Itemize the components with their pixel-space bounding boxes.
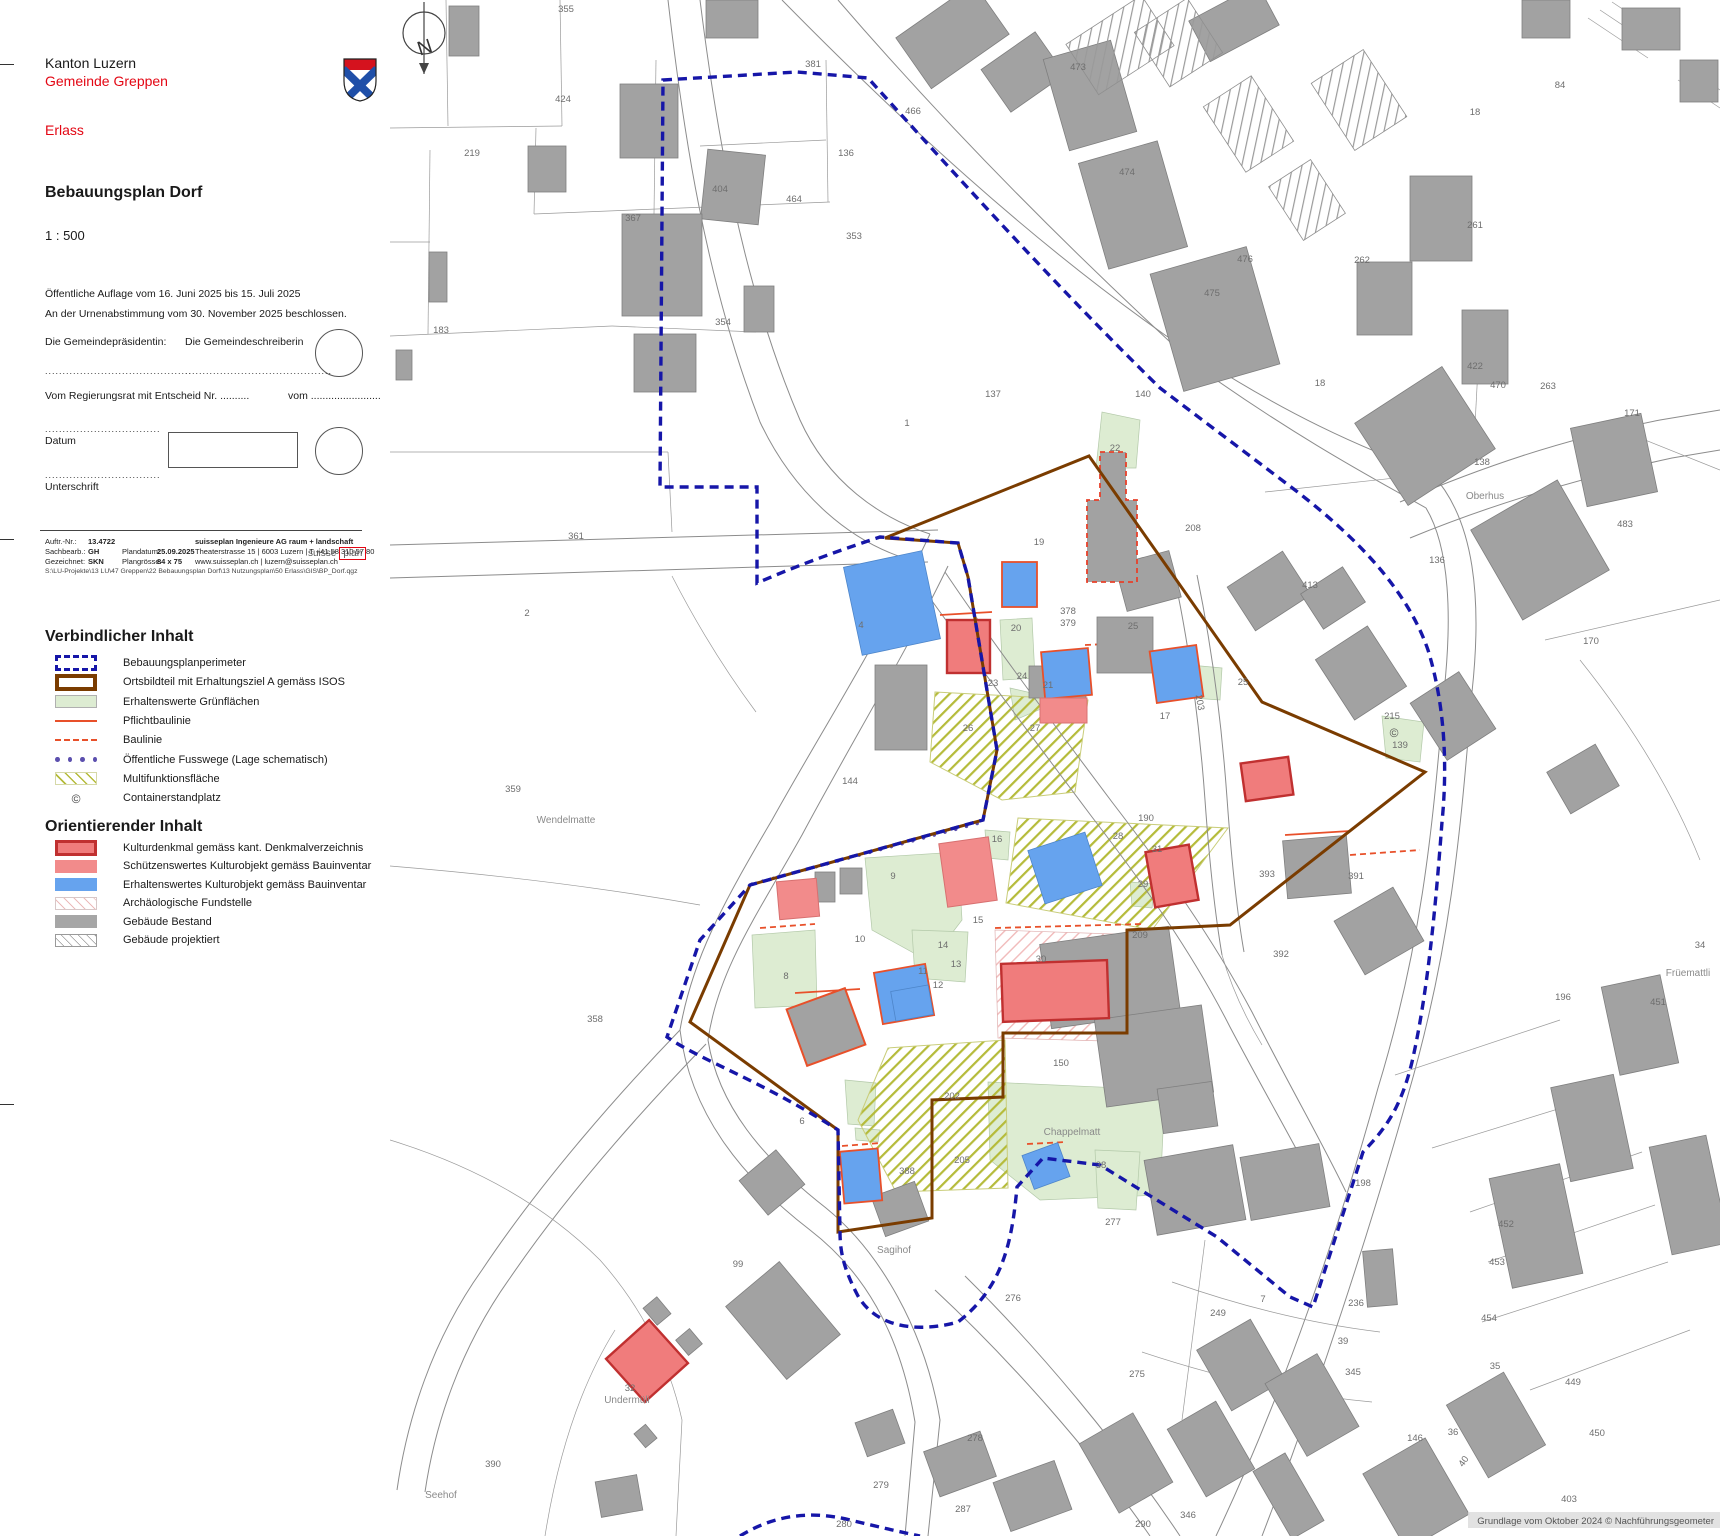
parcel-label: 378: [1060, 606, 1076, 617]
parcel-label: 14: [938, 940, 949, 951]
edge-tick: [0, 1104, 14, 1105]
parcel-label: 454: [1481, 1313, 1497, 1324]
legend-item-label: Ortsbildteil mit Erhaltungsziel A gemäss…: [123, 676, 345, 688]
legend-item-gruen: Erhaltenswerte Grünflächen: [55, 693, 259, 711]
stamp-circle-1: [315, 329, 363, 377]
building-erhaltenswert-baulinie: [1041, 648, 1092, 699]
firm-name: suisseplan Ingenieure AG raum + landscha…: [195, 537, 353, 546]
parcel-label: 208: [1185, 523, 1201, 534]
file-path: S:\LU-Projekte\13 LU\47 Greppen\22 Bebau…: [45, 568, 357, 575]
parcel-label: 171: [1624, 408, 1640, 419]
pflicht-swatch-icon: [55, 720, 97, 722]
parcel-label: 464: [786, 194, 802, 205]
building-bestand: [634, 334, 696, 392]
building-bestand: [1363, 1249, 1398, 1307]
plandatum-label: Plandatum:: [122, 547, 160, 556]
parcel-label: 346: [1180, 1510, 1196, 1521]
parcel-label: 24: [1017, 671, 1028, 682]
green-area: [752, 930, 817, 1008]
parcel-label: 1: [904, 418, 909, 429]
building-bestand: [840, 868, 862, 894]
parcel-label: 475: [1204, 288, 1220, 299]
parcel-label: 10: [855, 934, 866, 945]
building-bestand: [449, 6, 479, 56]
parcel-label: 236: [1348, 1298, 1364, 1309]
parcel-label: 359: [505, 784, 521, 795]
kultur-swatch-icon: [55, 840, 97, 856]
parcel-label: 99: [733, 1259, 744, 1270]
erhaltens-swatch-icon: [55, 878, 97, 891]
parcel-label: 84: [1555, 80, 1566, 91]
legend-item-label: Öffentliche Fusswege (Lage schematisch): [123, 754, 328, 766]
green-area: [1095, 1150, 1140, 1210]
fussweg-swatch-icon: [55, 753, 97, 766]
legend-item-container: ©Containerstandplatz: [55, 789, 221, 807]
building-bestand: [1462, 310, 1508, 384]
perimeter-swatch-icon: [55, 655, 97, 671]
suisseplan-logo: suisseplan: [308, 548, 366, 559]
parcel-label: 13: [951, 959, 962, 970]
legend-item-arch: Archäologische Fundstelle: [55, 894, 252, 912]
parcel-label: 36: [1448, 1427, 1459, 1438]
legend-item-label: Gebäude projektiert: [123, 934, 220, 946]
parcel-label: 473: [1070, 62, 1086, 73]
canton-label: Kanton Luzern: [45, 55, 136, 71]
legend-item-multi: Multifunktionsfläche: [55, 770, 220, 788]
gezeichnet-label: Gezeichnet:: [45, 557, 85, 566]
map-canvas: ©N35538142421936718340446435335436124661…: [390, 0, 1720, 1536]
unterschrift-label: Unterschrift: [45, 481, 99, 493]
parcel-label: 26: [963, 723, 974, 734]
parcel-label: 453: [1489, 1257, 1505, 1268]
legend-item-kultur: Kulturdenkmal gemäss kant. Denkmalverzei…: [55, 839, 363, 857]
parcel-label: 452: [1498, 1219, 1514, 1230]
building-bestand: [706, 0, 758, 38]
parcel-label: 367: [625, 213, 641, 224]
parcel-label: 392: [1273, 949, 1289, 960]
parcel-label: 30: [1036, 954, 1047, 965]
datum-label: Datum: [45, 435, 76, 447]
building-bestand: [701, 149, 766, 225]
parcel-label: 196: [1555, 992, 1571, 1003]
parcel-label: 355: [558, 4, 574, 15]
building-schuetzenswert: [1040, 698, 1087, 723]
building-bestand: [1283, 835, 1352, 898]
gezeichnet-value: SKN: [88, 557, 104, 566]
regierungsrat-line: Vom Regierungsrat mit Entscheid Nr. ....…: [45, 390, 249, 402]
parcel-label: 27: [1030, 723, 1041, 734]
parcel-label: 9: [890, 871, 895, 882]
baulinie-swatch-icon: [55, 739, 97, 741]
parcel-label: 358: [587, 1014, 603, 1025]
parcel-label: 404: [712, 184, 728, 195]
building-bestand: [1357, 262, 1412, 335]
building-erhaltenswert-baulinie: [840, 1148, 882, 1203]
parcel-label: 25: [1238, 677, 1249, 688]
parcel-label: 413: [1302, 580, 1318, 591]
vom-line: vom ........................: [288, 390, 381, 402]
parcel-label: 474: [1119, 167, 1135, 178]
building-bestand: [429, 252, 447, 302]
divider-rule: [40, 530, 362, 531]
parcel-label: 470: [1490, 380, 1506, 391]
parcel-label: 140: [1135, 389, 1151, 400]
signature-box: [168, 432, 298, 468]
title-panel: Kanton Luzern Gemeinde Greppen Erlass Be…: [0, 0, 390, 1536]
parcel-label: 449: [1565, 1377, 1581, 1388]
parcel-label: 277: [1105, 1217, 1121, 1228]
parcel-label: 353: [846, 231, 862, 242]
legend-item-erhaltens: Erhaltenswertes Kulturobjekt gemäss Baui…: [55, 876, 366, 894]
parcel-label: 39: [1338, 1336, 1349, 1347]
legend-title-orientierend: Orientierender Inhalt: [45, 818, 202, 836]
legend-item-isos: Ortsbildteil mit Erhaltungsziel A gemäss…: [55, 673, 345, 691]
projektiert-swatch-icon: [55, 934, 97, 947]
legend-item-perimeter: Bebauungsplanperimeter: [55, 654, 246, 672]
place-label: Seehof: [425, 1490, 457, 1501]
parcel-label: 381: [805, 59, 821, 70]
parcel-label: 20: [1011, 623, 1022, 634]
parcel-label: 424: [555, 94, 571, 105]
sig-left-label: Die Gemeindepräsidentin:: [45, 336, 166, 348]
parcel-label: 138: [1474, 457, 1490, 468]
place-label: Chappelmatt: [1044, 1127, 1101, 1138]
parcel-label: 278: [967, 1433, 983, 1444]
parcel-label: 137: [985, 389, 1001, 400]
stamp-circle-2: [315, 427, 363, 475]
plangroesse-value: 84 x 75: [157, 557, 182, 566]
parcel-label: 2: [524, 608, 529, 619]
parcel-label: 19: [1034, 537, 1045, 548]
parcel-label: 15: [973, 915, 984, 926]
isos-swatch-icon: [55, 674, 97, 691]
parcel-label: 361: [568, 531, 584, 542]
plandatum-value: 25.09.2025: [157, 547, 195, 556]
building-bestand: [1410, 176, 1472, 261]
building-bestand: [528, 146, 566, 192]
parcel-label: 262: [1354, 255, 1370, 266]
sig-left-line: ........................................…: [45, 366, 192, 376]
parcel-label: 393: [1259, 869, 1275, 880]
building-bestand: [620, 84, 678, 158]
sachbearb-label: Sachbearb.:: [45, 547, 85, 556]
parcel-label: 29: [1138, 879, 1149, 890]
parcel-label: 190: [1138, 813, 1154, 824]
parcel-label: 290: [1135, 1519, 1151, 1530]
building-bestand: [1097, 617, 1153, 673]
plan-map: ©N35538142421936718340446435335436124661…: [390, 0, 1720, 1536]
parcel-label: 209: [1132, 930, 1148, 941]
parcel-label: 21: [1043, 680, 1054, 691]
edge-tick: [0, 539, 14, 540]
logo-text-plan: plan: [339, 547, 366, 560]
legend-item-label: Erhaltenswertes Kulturobjekt gemäss Baui…: [123, 879, 366, 891]
legend-item-label: Containerstandplatz: [123, 792, 221, 804]
parcel-label: 202: [944, 1091, 960, 1102]
legend-item-baulinie: Baulinie: [55, 731, 162, 749]
map-attribution: Grundlage vom Oktober 2024 © Nachführung…: [1477, 1516, 1714, 1527]
parcel-label: 18: [1470, 107, 1481, 118]
building-bestand: [396, 350, 412, 380]
sachbearb-value: GH: [88, 547, 99, 556]
sig-right-label: Die Gemeindeschreiberin: [185, 336, 303, 348]
place-label: Früemattli: [1666, 968, 1710, 979]
legend-item-label: Erhaltenswerte Grünflächen: [123, 696, 259, 708]
parcel-label: 34: [1695, 940, 1706, 951]
building-schuetzenswert: [939, 837, 997, 907]
plangroesse-label: Plangrösse:: [122, 557, 162, 566]
parcel-label: 450: [1589, 1428, 1605, 1439]
parcel-label: 466: [905, 106, 921, 117]
parcel-label: 16: [992, 834, 1003, 845]
parcel-label: 22: [1110, 443, 1121, 454]
legend-item-label: Archäologische Fundstelle: [123, 897, 252, 909]
parcel-label: 263: [1540, 381, 1556, 392]
parcel-label: 379: [1060, 618, 1076, 629]
parcel-label: 275: [1129, 1369, 1145, 1380]
parcel-label: 32: [625, 1383, 636, 1394]
gruen-swatch-icon: [55, 695, 97, 708]
legend-item-fussweg: Öffentliche Fusswege (Lage schematisch): [55, 751, 328, 769]
parcel-label: 146: [1407, 1433, 1423, 1444]
parcel-label: 150: [1053, 1058, 1069, 1069]
building-kulturdenkmal: [1241, 757, 1294, 801]
parcel-label: 139: [1392, 740, 1408, 751]
parcel-label: 38: [1096, 1160, 1107, 1171]
building-erhaltenswert: [891, 985, 934, 1021]
building-bestand: [744, 286, 774, 332]
building-kulturdenkmal: [1001, 960, 1109, 1022]
schuetzens-swatch-icon: [55, 860, 97, 873]
parcel-label: 28: [1113, 831, 1124, 842]
parcel-label: 4: [858, 620, 863, 631]
parcel-label: 11: [918, 966, 928, 977]
parcel-label: 18: [1315, 378, 1326, 389]
building-bestand: [875, 665, 927, 750]
parcel-label: 422: [1467, 361, 1483, 372]
building-erhaltenswert-baulinie: [1002, 562, 1037, 607]
doc-type-label: Erlass: [45, 122, 84, 138]
building-bestand: [1522, 0, 1570, 38]
greppen-coat-of-arms-icon: [343, 58, 377, 107]
building-schuetzenswert: [776, 878, 819, 919]
parcel-label: 390: [485, 1459, 501, 1470]
parcel-label: 136: [838, 148, 854, 159]
containerstandplatz-icon: ©: [1390, 726, 1399, 740]
parcel-label: 198: [1355, 1178, 1371, 1189]
plan-sheet: Kanton Luzern Gemeinde Greppen Erlass Be…: [0, 0, 1720, 1536]
auftr-label: Auftr.-Nr.:: [45, 537, 77, 546]
logo-text-suisse: suisse: [308, 548, 336, 559]
plan-scale: 1 : 500: [45, 228, 85, 243]
legend-item-bestand: Gebäude Bestand: [55, 913, 212, 931]
auftr-value: 13.4722: [88, 537, 115, 546]
municipality-label: Gemeinde Greppen: [45, 73, 168, 89]
container-swatch-icon: ©: [55, 792, 97, 805]
datum-line: .................................: [45, 424, 161, 434]
parcel-label: 280: [836, 1519, 852, 1530]
parcel-label: 144: [842, 776, 858, 787]
parcel-label: 31: [1152, 844, 1163, 855]
parcel-label: 451: [1650, 997, 1666, 1008]
parcel-label: 7: [1260, 1294, 1265, 1305]
legend-item-projektiert: Gebäude projektiert: [55, 931, 220, 949]
building-bestand: [595, 1475, 643, 1518]
parcel-label: 12: [933, 980, 944, 991]
place-label: Sagihof: [877, 1245, 911, 1256]
parcel-label: 276: [1005, 1293, 1021, 1304]
parcel-label: 345: [1345, 1367, 1361, 1378]
public-notice-2: An der Urnenabstimmung vom 30. November …: [45, 308, 347, 320]
unterschrift-line: .................................: [45, 470, 161, 480]
legend-item-label: Kulturdenkmal gemäss kant. Denkmalverzei…: [123, 842, 363, 854]
parcel-label: 476: [1237, 254, 1253, 265]
edge-tick: [0, 64, 14, 65]
parcel-label: 219: [464, 148, 480, 159]
legend-item-label: Bebauungsplanperimeter: [123, 657, 246, 669]
legend-item-label: Schützenswertes Kulturobjekt gemäss Baui…: [123, 860, 371, 872]
legend-item-pflicht: Pflichtbaulinie: [55, 712, 191, 730]
place-label: Undermüli: [604, 1395, 650, 1406]
plan-title: Bebauungsplan Dorf: [45, 184, 202, 202]
legend-item-label: Baulinie: [123, 734, 162, 746]
sig-right-line: ........................................…: [185, 366, 332, 376]
parcel-label: 403: [1561, 1494, 1577, 1505]
place-label: Oberhus: [1466, 491, 1504, 502]
parcel-label: 136: [1429, 555, 1445, 566]
parcel-label: 249: [1210, 1308, 1226, 1319]
legend-item-label: Multifunktionsfläche: [123, 773, 220, 785]
legend-title-verbindlich: Verbindlicher Inhalt: [45, 628, 193, 646]
place-label: Wendelmatte: [537, 815, 596, 826]
parcel-label: 391: [1348, 871, 1364, 882]
parcel-label: 205: [954, 1155, 970, 1166]
bestand-swatch-icon: [55, 915, 97, 928]
parcel-label: 183: [433, 325, 449, 336]
parcel-label: 25: [1128, 621, 1139, 632]
parcel-label: 354: [715, 317, 731, 328]
parcel-label: 6: [799, 1116, 804, 1127]
parcel-label: 23: [988, 678, 999, 689]
building-bestand: [1144, 1145, 1246, 1235]
parcel-label: 35: [1490, 1361, 1501, 1372]
arch-swatch-icon: [55, 897, 97, 910]
building-bestand: [1680, 60, 1718, 102]
parcel-label: 215: [1384, 711, 1400, 722]
parcel-label: 8: [783, 971, 788, 982]
legend-item-label: Gebäude Bestand: [123, 916, 212, 928]
public-notice-1: Öffentliche Auflage vom 16. Juni 2025 bi…: [45, 288, 300, 300]
building-bestand: [1622, 8, 1680, 50]
parcel-label: 483: [1617, 519, 1633, 530]
building-bestand: [1240, 1144, 1330, 1221]
legend-item-label: Pflichtbaulinie: [123, 715, 191, 727]
parcel-label: 17: [1160, 711, 1171, 722]
parcel-label: 388: [899, 1166, 915, 1177]
parcel-label: 170: [1583, 636, 1599, 647]
parcel-label: 261: [1467, 220, 1483, 231]
building-bestand: [1157, 1081, 1218, 1133]
multi-swatch-icon: [55, 772, 97, 785]
parcel-label: 287: [955, 1504, 971, 1515]
legend-item-schuetzens: Schützenswertes Kulturobjekt gemäss Baui…: [55, 857, 371, 875]
parcel-label: 279: [873, 1480, 889, 1491]
